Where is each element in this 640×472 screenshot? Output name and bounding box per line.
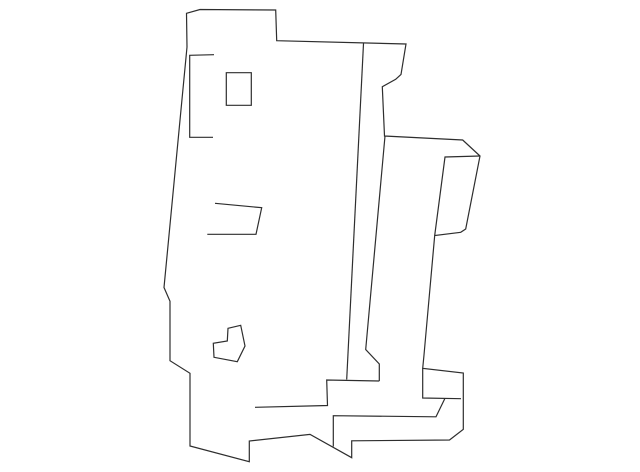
rectangular-hole bbox=[226, 73, 251, 106]
diagram-canvas bbox=[0, 0, 640, 472]
fold-line-left bbox=[347, 44, 364, 380]
flag-inner-edge bbox=[435, 156, 480, 236]
flange-bracket-line bbox=[190, 55, 214, 138]
l-shaped-hole bbox=[213, 325, 245, 361]
block-inner-edge bbox=[423, 368, 461, 398]
slot-outline bbox=[207, 203, 261, 234]
shelf-edge bbox=[255, 380, 379, 407]
fold-line-right bbox=[366, 136, 385, 381]
main-outline bbox=[164, 10, 480, 462]
part-line-drawing-svg bbox=[0, 0, 640, 472]
base-inner-edge bbox=[333, 398, 445, 446]
